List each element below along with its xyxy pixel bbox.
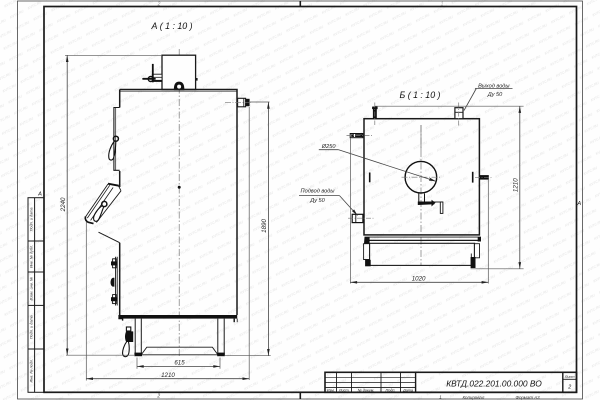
svg-text:1210: 1210 (512, 178, 519, 192)
svg-text:Ду 50: Ду 50 (487, 92, 503, 98)
svg-text:А ( 1 : 10 ): А ( 1 : 10 ) (150, 21, 192, 31)
svg-text:А: А (37, 192, 42, 198)
svg-text:Ду 50: Ду 50 (309, 198, 325, 204)
svg-text:1020: 1020 (412, 275, 426, 282)
svg-text:Подп.: Подп. (385, 388, 395, 392)
svg-text:1: 1 (441, 1, 444, 7)
svg-text:1890: 1890 (261, 219, 268, 233)
svg-text:Подвод воды: Подвод воды (301, 189, 335, 195)
svg-text:КВТД.022.201.00.000 ВО: КВТД.022.201.00.000 ВО (446, 378, 542, 388)
svg-text:Инв. № дубл.: Инв. № дубл. (29, 245, 33, 268)
svg-text:Изм.: Изм. (327, 388, 335, 392)
svg-text:Инв. № подл.: Инв. № подл. (29, 359, 33, 383)
svg-text:Лист: Лист (564, 375, 575, 379)
svg-text:2: 2 (567, 385, 571, 391)
svg-text:2240: 2240 (60, 197, 67, 212)
svg-text:№ докум.: № докум. (358, 388, 375, 392)
svg-text:Б ( 1 : 10 ): Б ( 1 : 10 ) (400, 90, 441, 100)
svg-text:Формат А3: Формат А3 (515, 395, 540, 400)
svg-text:Подп. и дата: Подп. и дата (29, 208, 33, 232)
svg-text:615: 615 (174, 360, 185, 367)
svg-text:2: 2 (156, 393, 160, 399)
svg-text:2: 2 (157, 1, 161, 7)
svg-text:Дата: Дата (402, 388, 413, 392)
svg-text:Взам. инв. №: Взам. инв. № (29, 277, 33, 300)
svg-text:Лист: Лист (338, 388, 349, 392)
svg-text:Подп. и дата: Подп. и дата (29, 315, 33, 339)
svg-text:А: А (576, 201, 581, 207)
svg-text:1210: 1210 (161, 372, 175, 379)
svg-text:Копировал: Копировал (462, 395, 484, 400)
